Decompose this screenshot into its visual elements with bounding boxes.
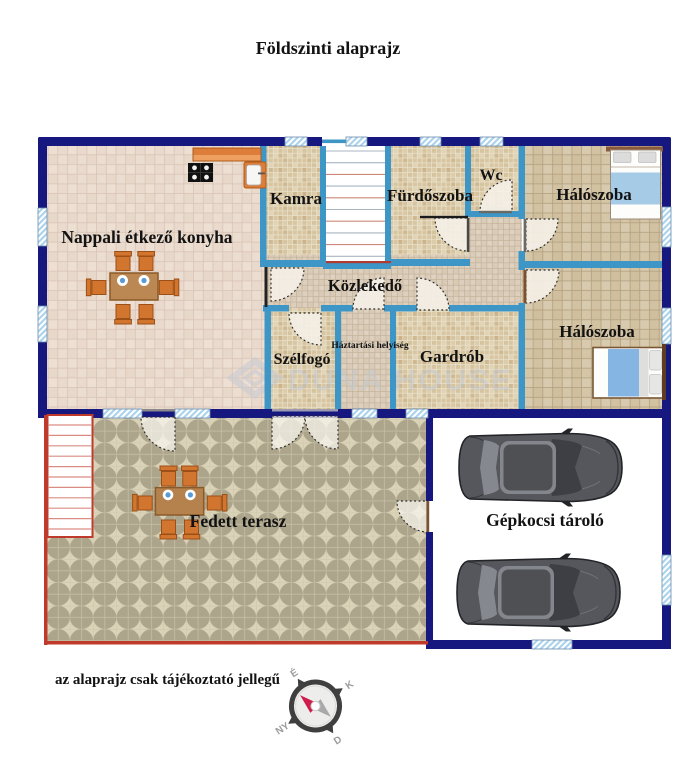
svg-text:Fedett terasz: Fedett terasz xyxy=(190,511,287,531)
svg-text:Kamra: Kamra xyxy=(270,189,322,208)
svg-text:DUNA HOUSE: DUNA HOUSE xyxy=(288,364,514,397)
svg-text:Gépkocsi tároló: Gépkocsi tároló xyxy=(486,510,604,530)
svg-text:Gardrób: Gardrób xyxy=(420,347,484,366)
svg-text:az alaprajz csak tájékoztató j: az alaprajz csak tájékoztató jellegű xyxy=(55,672,280,688)
svg-text:Wc: Wc xyxy=(479,167,502,184)
svg-text:Hálószoba: Hálószoba xyxy=(559,322,635,341)
svg-text:Hálószoba: Hálószoba xyxy=(556,185,632,204)
svg-text:Szélfogó: Szélfogó xyxy=(274,351,331,368)
svg-text:Közlekedő: Közlekedő xyxy=(328,276,402,295)
svg-text:Nappali étkező konyha: Nappali étkező konyha xyxy=(61,227,232,247)
svg-text:Földszinti alaprajz: Földszinti alaprajz xyxy=(256,38,401,58)
svg-text:Háztartási helyiség: Háztartási helyiség xyxy=(331,341,409,351)
svg-text:Fürdőszoba: Fürdőszoba xyxy=(387,186,473,205)
